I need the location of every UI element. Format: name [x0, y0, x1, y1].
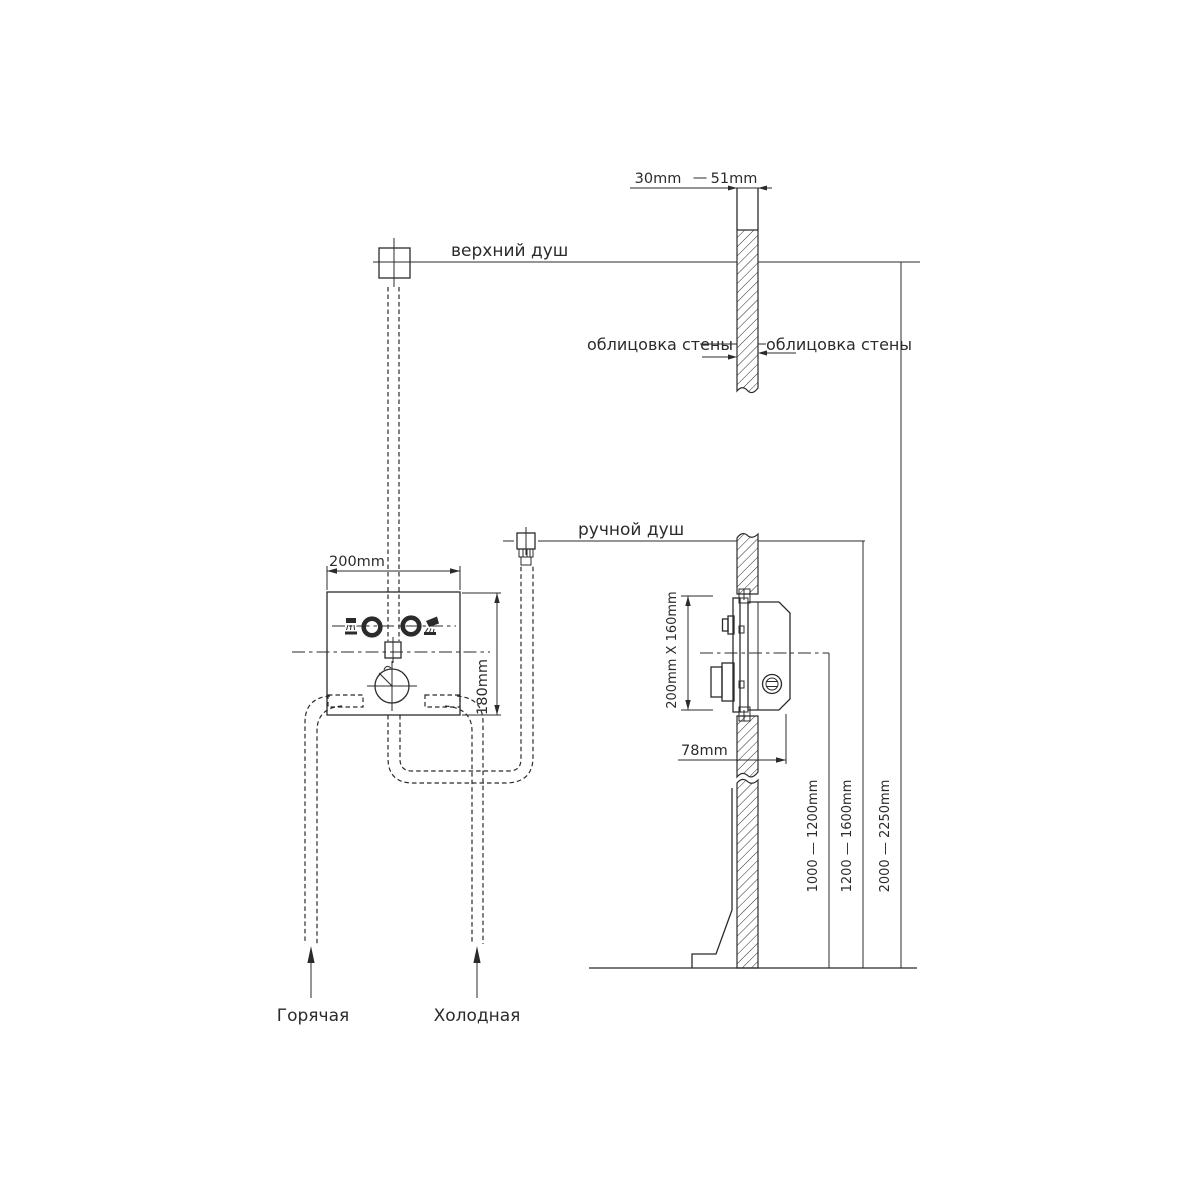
wall-hatch-mid-upper: [737, 534, 758, 594]
connection-port: [763, 675, 782, 694]
box-height-dim: 180mm: [475, 659, 491, 715]
wall-thickness-min: 30mm: [635, 171, 682, 187]
overhead-shower-label: верхний душ: [451, 241, 568, 261]
valve-bracket: [740, 598, 748, 712]
overhead-shower-reference: верхний душ: [373, 241, 920, 262]
rough-in-size-dim: 200mm X 160mm: [665, 591, 680, 708]
dim-box-width: 200mm: [327, 554, 460, 590]
valve-body: [748, 602, 790, 710]
diverter-knob-side: [711, 663, 734, 701]
front-view: верхний душ: [277, 238, 920, 1026]
left-valve-knob: [364, 619, 381, 636]
hot-flow-arrow: [307, 946, 314, 963]
valve-knob-side-top: [723, 616, 735, 634]
mounting-slot-right: [425, 695, 460, 707]
hand-shower-label: ручной душ: [578, 520, 684, 540]
cladding-arrow-right: [758, 350, 767, 355]
cold-supply-label: Холодная: [434, 1006, 521, 1026]
hand-shower-height-dim: 1200 — 1600mm: [840, 780, 855, 893]
wall-hatch-bottom: [737, 779, 758, 968]
body-depth-dim: 78mm: [681, 743, 728, 759]
hand-shower-outlet: [503, 527, 558, 565]
hot-water-pipe: Горячая: [277, 696, 349, 1026]
shower-riser-pipe: [388, 287, 399, 641]
dim-wall-thickness: 30mm — 51mm: [630, 170, 772, 191]
installation-drawing: верхний душ: [0, 0, 1200, 1200]
wall-hatch-upper: [737, 230, 758, 393]
wall-thickness-max: 51mm: [711, 171, 758, 187]
side-view: 30mm — 51mm облицовка стены облицовка ст…: [587, 170, 917, 968]
dim-mixer-height: 1000 — 1200mm: [806, 653, 829, 968]
diverter-handle: [367, 661, 417, 711]
dim-overhead-height: 2000 — 2250mm: [878, 262, 901, 968]
mixer-height-dim: 1000 — 1200mm: [806, 780, 821, 893]
cold-flow-arrow: [473, 946, 480, 963]
dim-rough-in: 200mm X 160mm: [665, 591, 713, 710]
box-width-dim: 200mm: [329, 554, 385, 570]
drawing-canvas: верхний душ: [0, 0, 1200, 1200]
dim-box-height: 180mm: [462, 593, 501, 715]
cladding-arrow-left: [728, 354, 737, 359]
wall-thickness-sep: —: [693, 170, 708, 186]
wall-section-upper: [737, 188, 758, 393]
overhead-height-dim: 2000 — 2250mm: [878, 780, 893, 893]
cladding-label-right: облицовка стены: [766, 335, 912, 354]
dim-depth: 78mm: [678, 714, 786, 764]
hot-supply-label: Горячая: [277, 1006, 349, 1026]
cold-water-pipe: Холодная: [434, 696, 521, 1026]
dim-hand-shower-height: 1200 — 1600mm: [840, 541, 863, 968]
hand-shower-reference: ручной душ: [547, 520, 865, 541]
mounting-slot-left: [328, 695, 363, 707]
valve-side-view: [700, 589, 829, 721]
wall-hatch-mid-lower: [737, 716, 758, 777]
overhead-shower-icon: [345, 618, 357, 635]
bathtub-outline: [692, 788, 732, 968]
